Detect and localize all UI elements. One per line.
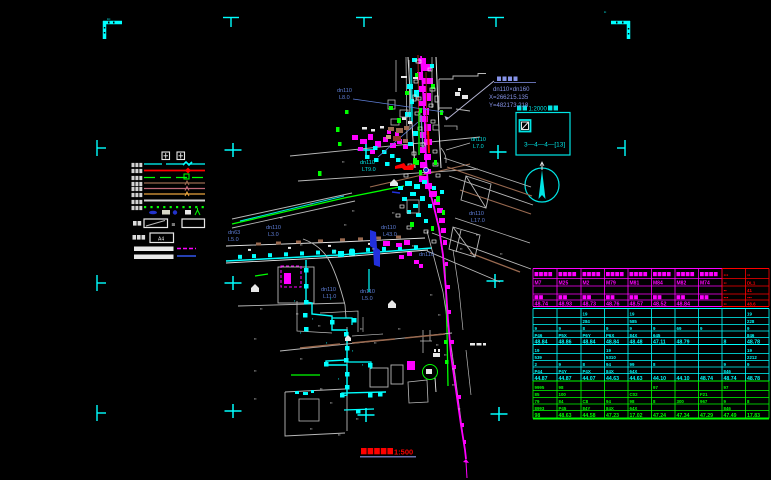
svg-text:▪▪: ▪▪ [254,337,257,341]
svg-text:100: 100 [559,392,567,397]
svg-text:284: 284 [583,319,591,324]
svg-text:▪▪: ▪▪ [438,313,441,317]
svg-text:▪▪: ▪▪ [392,211,395,215]
svg-text:M81: M81 [630,281,640,287]
svg-text:48.57: 48.57 [630,302,644,308]
svg-text:▪▪: ▪▪ [310,202,313,206]
svg-text:L43.0: L43.0 [383,232,397,238]
svg-text:▪▪: ▪▪ [356,417,359,421]
svg-text:X=266215.135: X=266215.135 [489,95,529,101]
svg-text:98: 98 [559,385,564,390]
svg-text:M25: M25 [559,281,569,287]
svg-text:▪▪: ▪▪ [604,10,606,14]
svg-text:L17.0: L17.0 [471,218,485,224]
svg-text:P4X: P4X [583,369,591,374]
svg-text:▪▪: ▪▪ [334,249,337,253]
svg-text:99: 99 [630,362,635,367]
svg-text:▪▪: ▪▪ [296,312,299,316]
svg-text:▪▪: ▪▪ [372,247,375,251]
svg-text:97: 97 [724,385,729,390]
svg-text:98: 98 [630,399,635,404]
svg-text:▪▪: ▪▪ [430,293,433,297]
svg-text:84X: 84X [606,406,614,411]
svg-text:94: 94 [606,362,611,367]
svg-text:M79: M79 [606,281,616,287]
svg-text:48.84: 48.84 [677,302,691,308]
svg-text:M82: M82 [677,281,687,287]
svg-text:94: 94 [606,399,611,404]
svg-text:F21: F21 [700,392,708,397]
svg-text:8993: 8993 [535,406,545,411]
svg-text:48.93: 48.93 [559,302,573,308]
svg-text:▪▪: ▪▪ [436,343,439,347]
svg-text:P4Y: P4Y [559,369,567,374]
svg-text:▪▪: ▪▪ [476,233,479,237]
svg-text:P46: P46 [535,333,543,338]
svg-text:▪▪: ▪▪ [280,216,283,220]
svg-text:▪▪: ▪▪ [412,244,415,248]
svg-text:▪▪: ▪▪ [330,401,333,405]
svg-text:dn110: dn110 [469,211,484,217]
svg-text:▪▪: ▪▪ [724,281,728,286]
svg-text:C02: C02 [630,392,639,397]
svg-text:L3.0: L3.0 [268,232,279,238]
svg-text:846: 846 [724,369,732,374]
svg-text:▪▪▪: ▪▪▪ [724,295,729,300]
svg-text:9995: 9995 [535,385,545,390]
svg-text:▪▪▪: ▪▪▪ [107,17,110,21]
svg-text:19: 19 [583,312,588,317]
svg-text:19: 19 [606,348,611,353]
svg-text:DL1: DL1 [747,281,756,286]
svg-text:▪▪: ▪▪ [458,407,461,411]
svg-text:dn110: dn110 [266,225,281,231]
svg-text:84: 84 [559,399,564,404]
svg-text:P6X: P6X [606,333,614,338]
svg-text:▪▪: ▪▪ [310,427,313,431]
svg-text:▪▪: ▪▪ [452,383,455,387]
svg-text:dn110: dn110 [337,88,352,94]
svg-text:M7: M7 [535,281,542,287]
svg-text:228: 228 [747,319,755,324]
svg-text:5310: 5310 [606,355,616,360]
svg-text:Y=482173.218: Y=482173.218 [489,103,529,109]
svg-text:▪▪: ▪▪ [338,433,341,437]
svg-text:48.6: 48.6 [747,302,756,307]
svg-text:P5X: P5X [559,333,567,338]
svg-text:846: 846 [747,333,755,338]
svg-text:P45: P45 [559,406,567,411]
svg-text:48.74: 48.74 [535,302,549,308]
svg-text:19: 19 [630,312,635,317]
svg-text:▪▪: ▪▪ [300,243,303,247]
svg-text:▪▪: ▪▪ [254,397,257,401]
svg-text:L8.0: L8.0 [339,95,350,101]
svg-text:84X: 84X [606,369,614,374]
svg-text:▪▪: ▪▪ [342,160,345,164]
svg-text:64X: 64X [630,406,638,411]
svg-text:M74: M74 [700,281,710,287]
svg-text:1:500: 1:500 [394,448,413,457]
svg-text:645: 645 [653,333,661,338]
svg-text:LT9.0: LT9.0 [362,167,376,173]
svg-text:▪: ▪ [338,377,339,381]
svg-text:M2: M2 [583,281,590,287]
svg-text:M84: M84 [653,281,663,287]
svg-text:79: 79 [535,399,540,404]
svg-text:▪: ▪ [312,317,313,321]
svg-text:P44: P44 [535,369,543,374]
svg-text:84X: 84X [630,333,638,338]
svg-text:▪▪: ▪▪ [724,288,728,293]
svg-text:dn110: dn110 [381,225,396,231]
svg-text:▪▪: ▪▪ [374,341,377,345]
svg-text:▪▪: ▪▪ [254,369,257,373]
svg-text:▪▪: ▪▪ [398,327,401,331]
svg-text:2212: 2212 [747,355,757,360]
svg-text:19: 19 [747,312,752,317]
svg-text:dn110: dn110 [471,137,486,143]
svg-text:dn63: dn63 [228,230,240,236]
svg-text:967: 967 [700,399,708,404]
svg-text:▪▪: ▪▪ [452,367,455,371]
svg-text:97: 97 [653,385,658,390]
svg-text:▪▪: ▪▪ [318,324,321,328]
svg-text:48.52: 48.52 [653,302,667,308]
svg-text:85: 85 [535,392,540,397]
svg-text:▪▪: ▪▪ [724,302,728,307]
svg-text:48.73: 48.73 [583,302,597,308]
svg-text:A4: A4 [158,237,164,243]
svg-text:dn110×dn160: dn110×dn160 [493,87,530,93]
svg-text:539: 539 [535,355,543,360]
svg-text:▪▪: ▪▪ [444,353,447,357]
svg-text:300: 300 [677,399,685,404]
svg-text:▪▪▪: ▪▪▪ [724,273,729,278]
svg-text:▪▪: ▪▪ [320,387,323,391]
svg-text:▪: ▪ [362,363,363,367]
svg-text:▪▪: ▪▪ [300,357,303,361]
svg-text:L5.0: L5.0 [362,296,373,302]
svg-text:84Y: 84Y [583,406,591,411]
svg-text:▪▪: ▪▪ [500,252,503,256]
svg-text:dn110: dn110 [360,289,375,295]
svg-text:L7.0: L7.0 [473,144,484,150]
svg-text:846: 846 [724,406,732,411]
svg-text:69: 69 [677,326,682,331]
svg-text:585: 585 [630,319,638,324]
svg-text:3—4—4—[13]: 3—4—4—[13] [524,142,565,149]
svg-text:▪: ▪ [330,297,331,301]
svg-text:▪▪: ▪▪ [360,327,363,331]
svg-text:▪: ▪ [294,299,295,303]
svg-text:dn110: dn110 [321,287,336,293]
svg-text:dn110: dn110 [360,160,375,166]
svg-text:19: 19 [747,348,752,353]
svg-text:▪▪▪: ▪▪▪ [747,295,752,300]
svg-text:▪▪: ▪▪ [344,223,347,227]
svg-text:≡: ≡ [172,222,176,229]
svg-text:▪: ▪ [300,331,301,335]
svg-text:L5.0: L5.0 [228,237,239,243]
svg-text:▪▪: ▪▪ [352,209,355,213]
svg-text:▪▪: ▪▪ [460,247,463,251]
svg-text:1:2000: 1:2000 [529,107,548,113]
svg-text:▪▪: ▪▪ [260,307,263,311]
svg-text:19: 19 [535,348,540,353]
svg-text:▪▪: ▪▪ [747,273,751,278]
svg-text:64X: 64X [630,369,638,374]
svg-text:dn110: dn110 [419,252,434,258]
svg-text:C8: C8 [583,399,589,404]
svg-text:▪: ▪ [326,341,327,345]
svg-text:48.76: 48.76 [606,302,620,308]
svg-text:▪: ▪ [352,349,353,353]
svg-text:P6Y: P6Y [583,333,591,338]
svg-text:41: 41 [747,288,752,293]
